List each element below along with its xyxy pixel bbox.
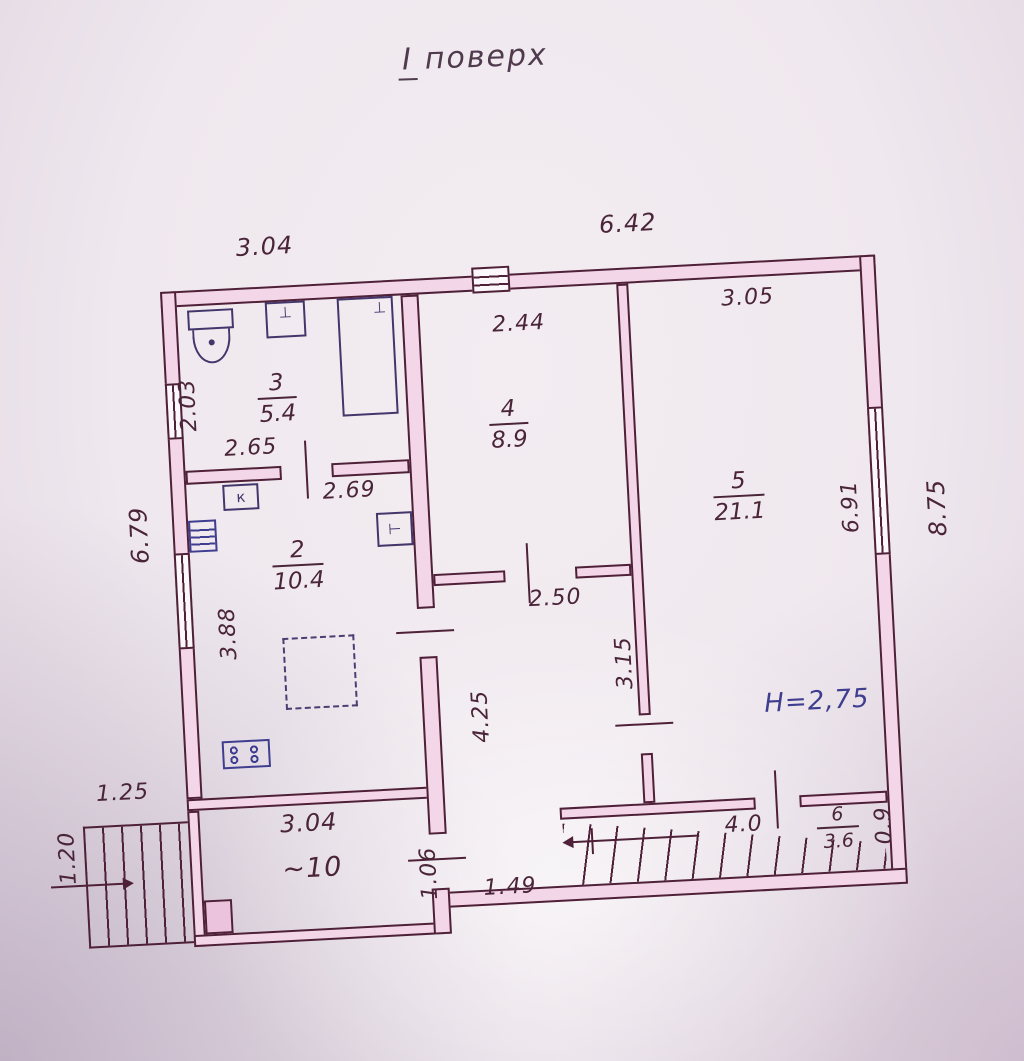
room-3-area: 5.4 xyxy=(258,398,298,428)
room-6-number: 6 xyxy=(816,802,859,829)
dim-room10-right: 1.06 xyxy=(415,846,443,900)
room-2-number: 2 xyxy=(271,536,324,568)
dim-hall-bottom: 1.49 xyxy=(483,873,537,901)
k-box-icon: к xyxy=(222,483,259,511)
room-2-label: 2 10.4 xyxy=(271,536,325,596)
meter-box-label: ⊢ xyxy=(388,521,402,537)
room-10-label: ~10 xyxy=(282,851,344,885)
dim-hall-left: 4.25 xyxy=(467,689,495,743)
boiler-label: ⊥ xyxy=(373,300,387,316)
room-4-number: 4 xyxy=(488,395,528,426)
toilet-bowl-icon xyxy=(192,328,232,364)
dim-stairs-top: 4.0 xyxy=(724,811,763,838)
dim-room4-top: 2.44 xyxy=(492,310,546,338)
dim-room5-right: 6.91 xyxy=(837,480,865,534)
room-4-area: 8.9 xyxy=(489,424,529,454)
door-mark-room5 xyxy=(615,722,673,727)
door-mark-room3 xyxy=(304,441,309,499)
floor-word: поверх xyxy=(424,37,548,76)
dim-top-left: 3.04 xyxy=(235,231,294,262)
toilet-icon xyxy=(187,308,238,370)
vent-box-label: ⊥ xyxy=(278,305,292,321)
room-6-area: 3.6 xyxy=(817,827,860,853)
scanned-floorplan-photo: { "title": { "numeral": "І", "word": "по… xyxy=(0,0,1024,1061)
toilet-tank-icon xyxy=(187,308,234,330)
boiler-icon: ⊥ xyxy=(337,296,399,417)
room-6-label: 6 3.6 xyxy=(816,802,861,853)
hatch-opening-icon xyxy=(282,634,358,710)
door-mark-stairwell xyxy=(774,770,779,828)
stove-icon xyxy=(222,739,271,769)
dim-room2-left: 3.88 xyxy=(215,606,243,660)
dim-right-outer: 8.75 xyxy=(922,478,953,537)
room-2-area: 10.4 xyxy=(273,565,326,596)
window-right xyxy=(867,406,891,555)
window-left-lower xyxy=(174,553,195,650)
room-5-area: 21.1 xyxy=(714,496,767,527)
dim-stairs-right: 0.9 xyxy=(870,806,897,845)
vent-box-icon: ⊥ xyxy=(265,300,307,338)
vent-top-wall xyxy=(471,266,510,294)
dim-porch-top: 1.25 xyxy=(96,779,150,807)
dim-room2-top: 2.69 xyxy=(322,477,376,505)
page-title: Іповерх xyxy=(397,37,548,80)
room-4-label: 4 8.9 xyxy=(488,395,530,454)
dim-room3-bottom: 2.65 xyxy=(224,434,278,462)
room-5-number: 5 xyxy=(712,467,765,499)
dim-porch-left: 1.20 xyxy=(54,831,82,885)
ceiling-height-note: H=2,75 xyxy=(764,683,871,718)
dim-hall-right: 3.15 xyxy=(611,636,639,690)
dim-left-outer: 6.79 xyxy=(124,506,155,565)
wall-room5-lower xyxy=(641,753,656,804)
wall-annex-top xyxy=(187,786,443,811)
dim-room10-top: 3.04 xyxy=(279,807,338,838)
room-3-label: 3 5.4 xyxy=(256,369,298,428)
room-3-number: 3 xyxy=(256,369,296,400)
floor-numeral: І xyxy=(397,42,417,81)
sink-icon xyxy=(188,519,218,552)
dim-room3-left: 2.03 xyxy=(175,378,203,432)
room-5-label: 5 21.1 xyxy=(712,467,766,527)
dim-hall-top: 2.50 xyxy=(528,584,582,612)
annex-corner-pier xyxy=(204,899,234,934)
wall-room4-hall-right xyxy=(575,564,632,579)
wall-center-upper xyxy=(401,294,435,609)
door-mark-center-upper xyxy=(396,629,454,634)
dim-top-right: 6.42 xyxy=(598,208,657,239)
wall-room3-room2-left xyxy=(185,466,282,485)
wall-room4-hall-left xyxy=(433,570,506,586)
wall-room3-room2-right xyxy=(331,459,410,477)
k-box-label: к xyxy=(236,489,246,504)
meter-box-icon: ⊢ xyxy=(376,511,414,547)
wall-center-middle xyxy=(419,656,446,835)
dim-room5-top: 3.05 xyxy=(720,284,774,312)
